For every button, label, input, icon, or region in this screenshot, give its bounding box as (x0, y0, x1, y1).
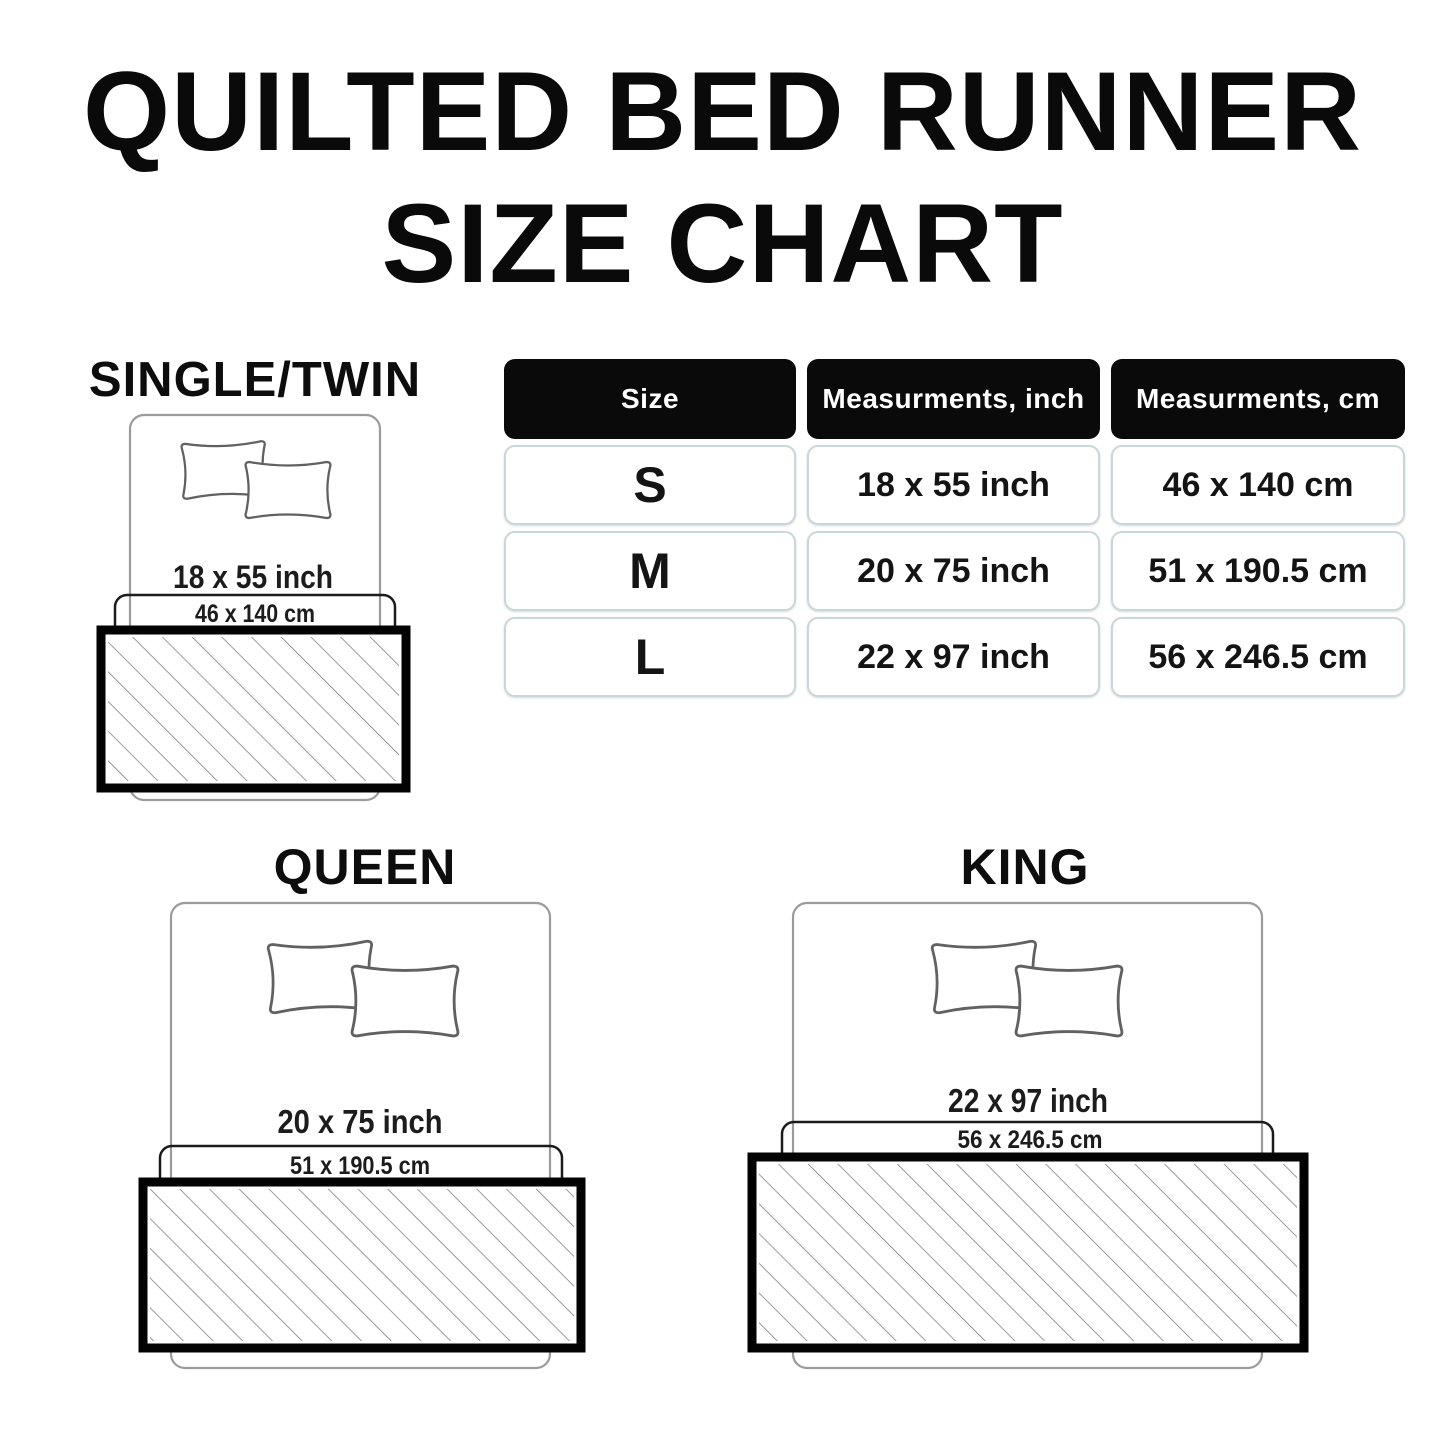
table-cell-cm-s: 46 x 140 cm (1111, 445, 1405, 525)
pillow-icon (246, 462, 331, 518)
diagram-label-king: KING (715, 838, 1335, 896)
table-cell-cm-m: 51 x 190.5 cm (1111, 531, 1405, 611)
page-title: QUILTED BED RUNNER SIZE CHART (0, 46, 1445, 310)
size-chart-page: QUILTED BED RUNNER SIZE CHART SINGLE/TWI… (0, 0, 1445, 1445)
cm-measurement-label: 46 x 140 cm (195, 600, 315, 628)
table-cell-inch-s: 18 x 55 inch (807, 445, 1100, 525)
table-cell-cm-l: 56 x 246.5 cm (1111, 617, 1405, 697)
table-cell-inch-l: 22 x 97 inch (807, 617, 1100, 697)
bed-diagram-queen: 20 x 75 inch 51 x 190.5 cm (130, 895, 600, 1385)
table-header-cm: Measurments, cm (1111, 359, 1405, 439)
bed-runner-swatch (101, 630, 406, 788)
pillow-icon (352, 966, 458, 1036)
table-cell-size-l: L (504, 617, 796, 697)
bed-runner-swatch (143, 1182, 581, 1348)
bed-diagram-king: 22 x 97 inch 56 x 246.5 cm (715, 895, 1335, 1385)
pillow-icon (1016, 966, 1122, 1036)
cm-measurement-label: 56 x 246.5 cm (958, 1126, 1103, 1154)
inch-measurement-label: 18 x 55 inch (173, 559, 333, 595)
size-table: Size Measurments, inch Measurments, cm S… (504, 359, 1405, 697)
diagram-label-queen: QUEEN (130, 838, 600, 896)
diagram-label-single-twin: SINGLE/TWIN (85, 352, 425, 408)
page-title-line1: QUILTED BED RUNNER (0, 46, 1445, 178)
bed-runner-swatch (752, 1157, 1304, 1348)
table-cell-inch-m: 20 x 75 inch (807, 531, 1100, 611)
inch-measurement-label: 20 x 75 inch (278, 1103, 443, 1140)
table-cell-size-s: S (504, 445, 796, 525)
cm-measurement-label: 51 x 190.5 cm (290, 1152, 430, 1180)
page-title-line2: SIZE CHART (0, 178, 1445, 310)
table-header-size: Size (504, 359, 796, 439)
table-cell-size-m: M (504, 531, 796, 611)
bed-diagram-single-twin: 18 x 55 inch 46 x 140 cm (85, 410, 425, 815)
runner-hatch-fill (108, 637, 399, 781)
runner-hatch-fill (759, 1164, 1297, 1341)
runner-hatch-fill (150, 1189, 574, 1341)
inch-measurement-label: 22 x 97 inch (948, 1082, 1108, 1119)
table-header-inch: Measurments, inch (807, 359, 1100, 439)
